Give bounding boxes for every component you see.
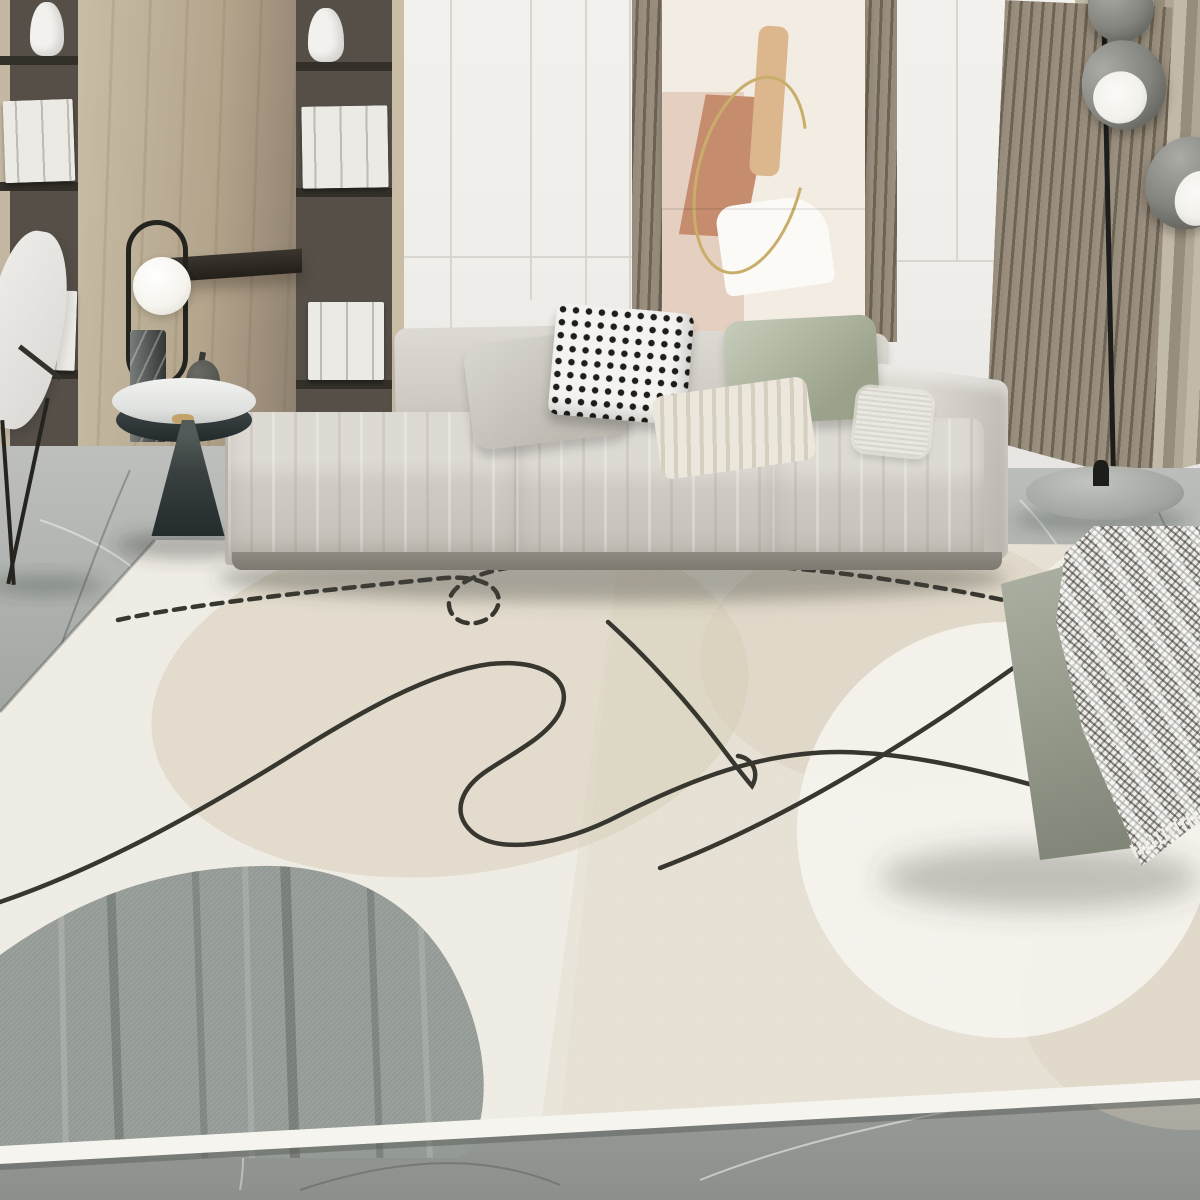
pillow-fringed bbox=[853, 386, 933, 457]
floor-lamp-foot bbox=[1093, 460, 1109, 486]
table-lamp-globe bbox=[133, 257, 191, 315]
living-room-photo: Lifestyle product photo of a beige abstr… bbox=[0, 0, 1200, 1200]
sofa-base-shadow bbox=[232, 552, 1002, 570]
dome-inner-diffuser bbox=[1167, 164, 1200, 232]
